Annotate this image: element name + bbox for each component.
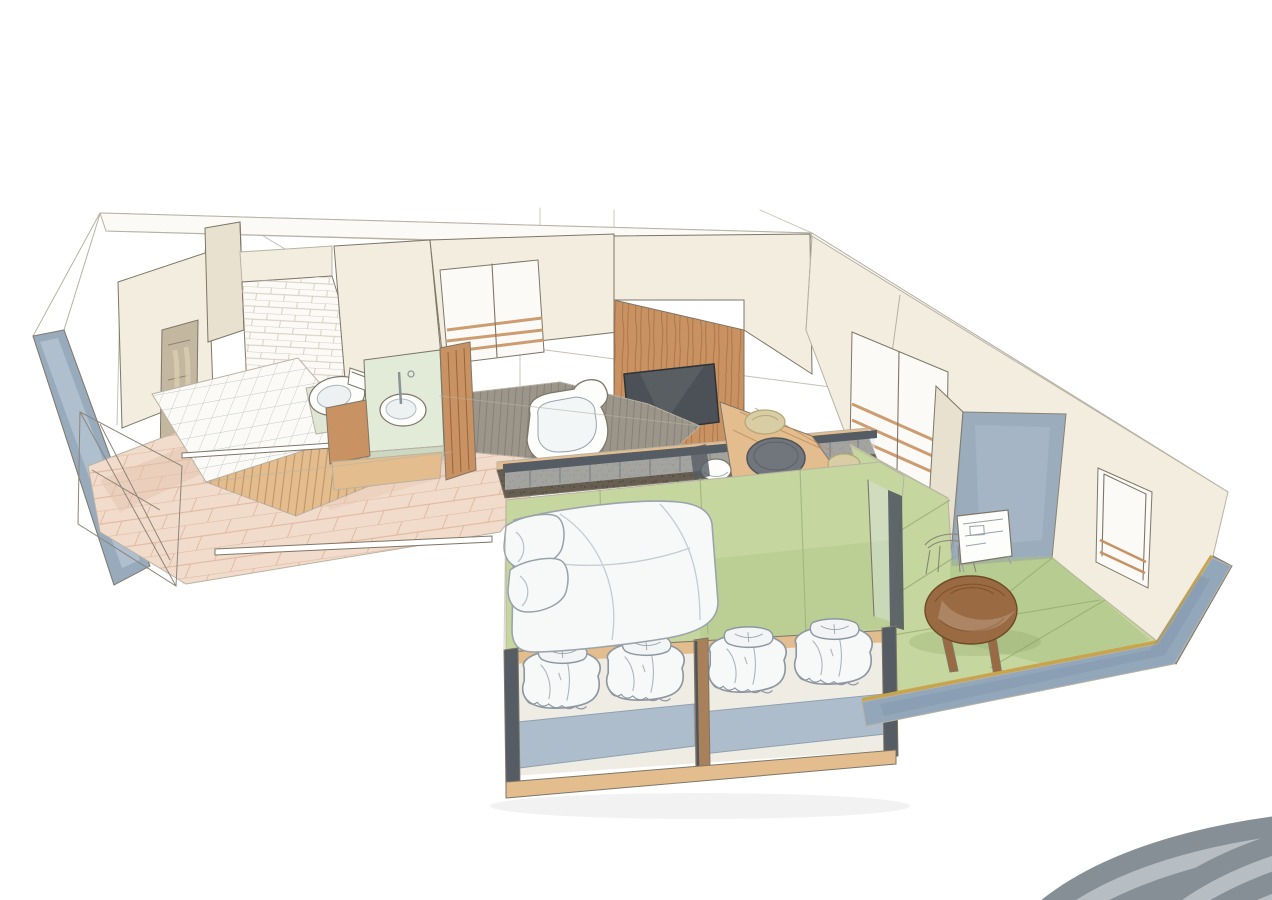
room-cutaway-illustration xyxy=(0,0,1272,900)
pillows xyxy=(504,514,568,612)
entry-pillar xyxy=(205,222,244,342)
beige-cushion xyxy=(745,410,785,434)
bed xyxy=(504,501,718,652)
illustration-canvas xyxy=(0,0,1272,900)
side-screen xyxy=(868,480,904,630)
floor-cushions xyxy=(984,806,1272,900)
slat-screen xyxy=(440,342,476,480)
